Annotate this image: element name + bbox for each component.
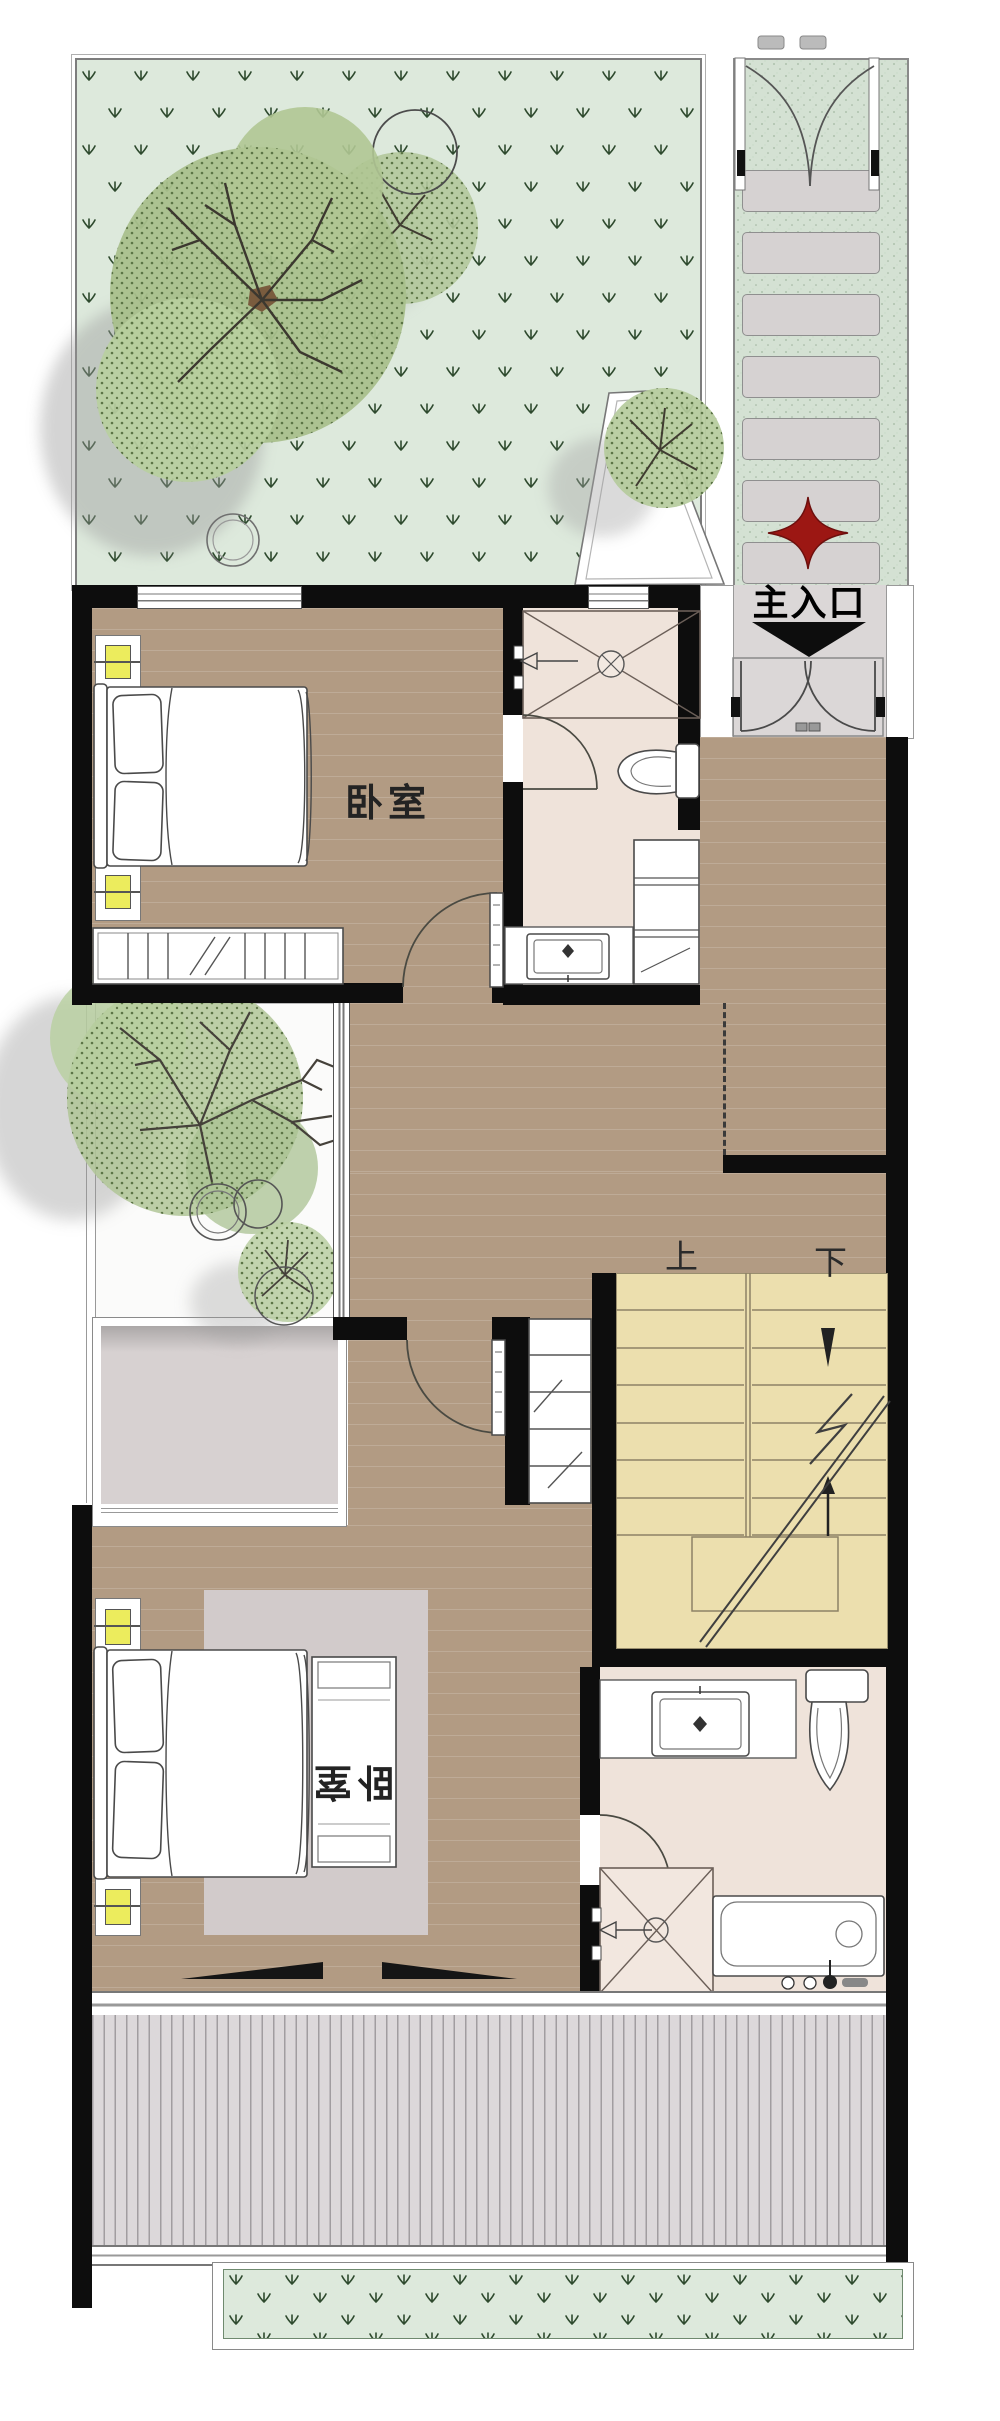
sliding-door-arrows-icon — [150, 1950, 570, 1995]
entrance-arrow-icon — [752, 622, 866, 657]
closet-icon — [527, 1317, 595, 1507]
stepping-stone — [742, 418, 880, 460]
window-strip-courtyard — [333, 1003, 350, 1317]
grass-strip-pattern — [224, 2270, 902, 2338]
wall-corridor — [333, 1317, 407, 1340]
main-entrance-label: 主入口 — [733, 574, 886, 626]
grass-strip — [223, 2269, 903, 2339]
sink-lower-icon — [600, 1680, 796, 1758]
terrace — [92, 1317, 347, 1527]
gate-door-icon — [746, 66, 874, 186]
courtyard-trees — [0, 985, 380, 1340]
shower-upper-icon — [514, 611, 700, 718]
grass-strip-frame — [212, 2262, 914, 2350]
stairs-down-label: 下 — [814, 1236, 847, 1284]
nightstand-line — [94, 1905, 140, 1907]
stepping-stone — [742, 356, 880, 398]
toilet-lower-icon — [806, 1670, 868, 1790]
bathroom-upper-fixtures — [498, 600, 708, 1010]
shower-lower-icon — [592, 1868, 713, 1993]
door-bedroom-upper-icon — [395, 885, 510, 995]
entry-doors — [725, 612, 895, 747]
door-bedroom-lower-icon — [400, 1330, 515, 1445]
bedroom-lower-label: 卧室 — [302, 1758, 402, 1813]
door-bathroom-upper-icon — [523, 715, 597, 789]
compass-icon — [755, 490, 865, 585]
bathroom-lower-fixtures — [575, 1660, 890, 2000]
stair-treads — [616, 1273, 886, 1611]
bedroom-upper-label: 卧室 — [345, 772, 431, 827]
stairs-details — [610, 1265, 900, 1660]
garden-gate-tree-icon — [604, 388, 724, 508]
wall-bedroom-upper-south — [72, 983, 403, 1003]
terrace-glazing — [101, 1508, 338, 1518]
window-bedroom-upper — [137, 586, 302, 609]
entry-hall-floor — [700, 737, 886, 1003]
deck-area — [92, 2015, 886, 2245]
stairs-up-label: 上 — [665, 1230, 698, 1278]
stair-break-line — [700, 1394, 890, 1647]
sink-upper-icon — [505, 927, 633, 984]
cabinet-icon — [634, 840, 699, 984]
nightstand-line — [94, 661, 140, 663]
stepping-stone — [742, 294, 880, 336]
floor-plan-canvas: 主入口 — [0, 0, 1000, 2421]
bed-upper-icon — [88, 678, 333, 878]
nightstand-line — [94, 891, 140, 893]
garden-gate — [725, 25, 915, 200]
wardrobe-icon — [92, 926, 345, 986]
toilet-upper-icon — [618, 744, 699, 798]
hallway-floor — [348, 1173, 592, 1340]
terrace-paving — [101, 1326, 338, 1504]
bathtub-icon — [713, 1896, 884, 1989]
hallway-floor — [348, 1003, 886, 1173]
stepping-stone — [742, 232, 880, 274]
void-dashed-line — [723, 1003, 726, 1155]
entry-door-icon — [741, 661, 875, 731]
nightstand-line — [94, 1625, 140, 1627]
wall-void — [723, 1155, 886, 1173]
wall-left-lower — [72, 1505, 92, 2308]
garden-trees — [0, 20, 760, 620]
